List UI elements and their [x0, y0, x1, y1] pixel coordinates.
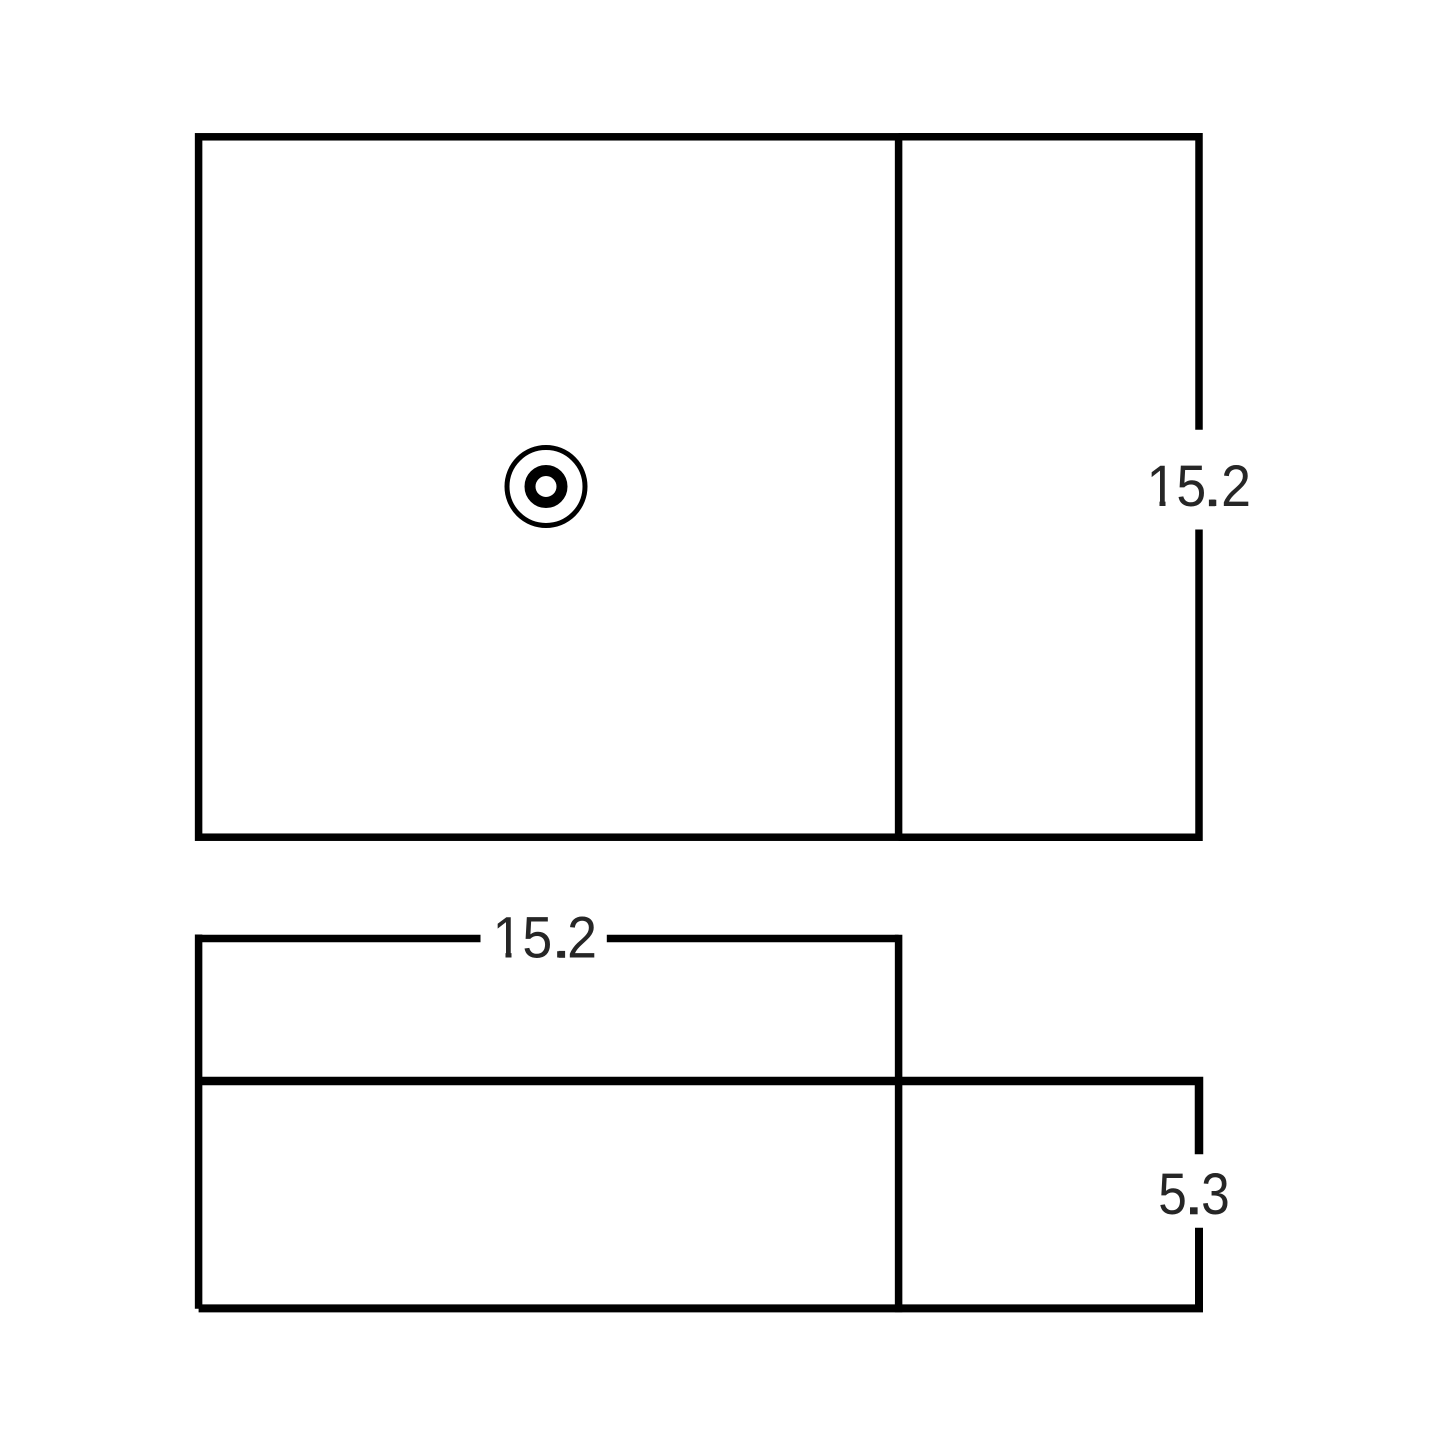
svg-text:15.2: 15.2 — [1147, 454, 1252, 519]
svg-text:15.2: 15.2 — [493, 906, 598, 971]
svg-text:5.3: 5.3 — [1158, 1162, 1230, 1227]
